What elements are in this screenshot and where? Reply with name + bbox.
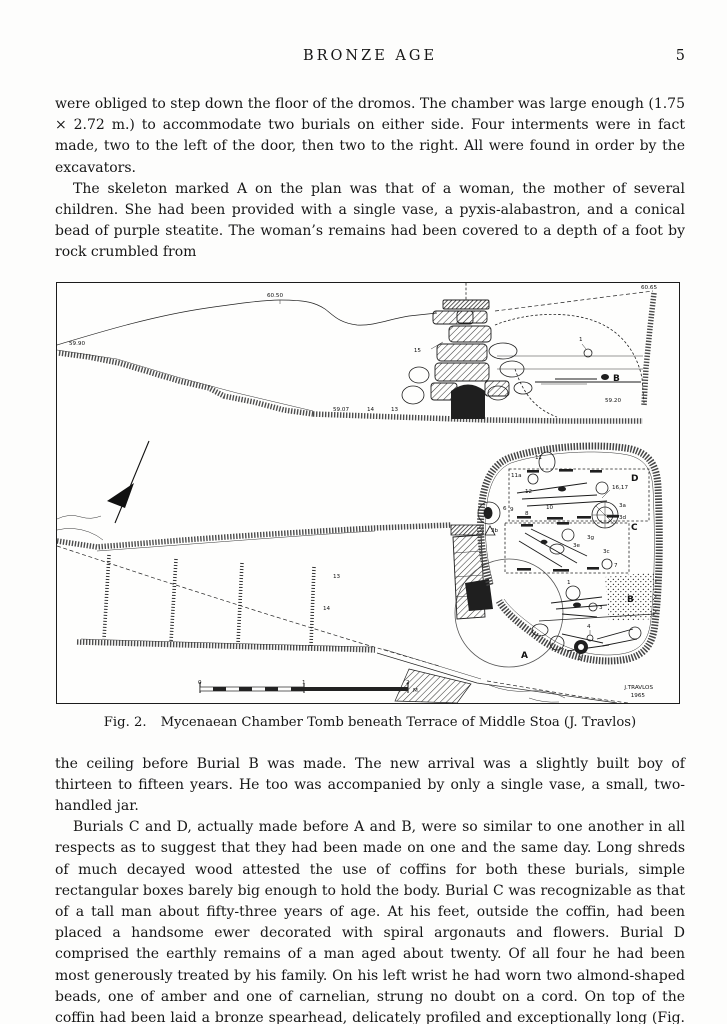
section-drawing: 60.50 60.65 59.90 59.07 14 13 59.20 15 1… — [57, 283, 657, 421]
figure-caption: Fig. 2.Mycenaean Chamber Tomb beneath Te… — [55, 715, 685, 730]
elevation-label: 60.50 — [267, 293, 283, 299]
burial-a-label: A — [521, 651, 528, 661]
item-label: 3b — [491, 528, 499, 534]
scale-label: 1 — [302, 680, 306, 686]
item-label: 3a — [619, 503, 626, 509]
book-page: BRONZE AGE 5 were obliged to step down t… — [0, 0, 727, 1024]
scale-bar: 0 1 2 M. — [198, 680, 420, 694]
scale-label: 2 — [406, 680, 410, 686]
section-skeleton-b — [535, 374, 641, 384]
paragraph: were obliged to step down the floor of t… — [55, 94, 685, 179]
item-label: 14 — [367, 407, 375, 413]
figure-credit: J.TRAVLOS — [623, 685, 653, 691]
paragraph: Burials C and D, actually made before A … — [55, 817, 685, 1024]
item-label: 3g — [587, 535, 595, 541]
page-number: 5 — [676, 48, 685, 64]
paragraph: the ceiling before Burial B was made. Th… — [55, 754, 685, 818]
text-block-top: were obliged to step down the floor of t… — [55, 94, 685, 264]
item-label: 8 — [525, 511, 529, 517]
burial-b-label: B — [627, 595, 634, 605]
figure-frame: 60.50 60.65 59.90 59.07 14 13 59.20 15 1… — [56, 282, 680, 704]
item-label: 13 — [333, 574, 341, 580]
item-label: 16,17 — [612, 485, 628, 491]
paragraph: The skeleton marked A on the plan was th… — [55, 179, 685, 264]
figure-caption-text: Mycenaean Chamber Tomb beneath Terrace o… — [161, 715, 637, 730]
section-burial-b-label: B — [613, 374, 620, 384]
item-label: 11a — [511, 473, 522, 479]
item-label: 9 — [510, 507, 514, 513]
item-label: 3e — [573, 543, 581, 549]
text-block-bottom: the ceiling before Burial B was made. Th… — [55, 754, 685, 1024]
figure-credit-year: 1965 — [631, 693, 646, 699]
item-label: 2 — [578, 656, 582, 662]
scale-unit-label: M. — [413, 688, 420, 694]
item-label: 7 — [614, 563, 618, 569]
running-title: BRONZE AGE — [303, 48, 437, 64]
north-arrow-icon — [107, 441, 149, 523]
item-label: 10 — [546, 505, 554, 511]
item-label: 13 — [391, 407, 399, 413]
krater-item — [592, 502, 618, 528]
item-label: 15 — [414, 348, 422, 354]
figure-2: 60.50 60.65 59.90 59.07 14 13 59.20 15 1… — [55, 282, 685, 730]
burial-b — [539, 572, 658, 621]
figure-drawing: 60.50 60.65 59.90 59.07 14 13 59.20 15 1… — [57, 283, 679, 703]
item-label: 12 — [525, 489, 532, 495]
plan-drawing: 13 14 D C B A 11 11a 12 16,17 9 8 10 6 — [57, 441, 659, 703]
later-wall — [395, 669, 471, 703]
item-label: 1 — [567, 580, 571, 586]
item-label: 4 — [587, 624, 591, 630]
page-header: BRONZE AGE 5 — [55, 0, 685, 64]
scale-label: 0 — [198, 680, 202, 686]
item-label: 11 — [535, 455, 543, 461]
elevation-label: 59.07 — [333, 407, 349, 413]
item-7-circle — [602, 559, 612, 569]
burial-d-label: D — [631, 474, 638, 484]
item-label: 1 — [579, 337, 583, 343]
item-label: 6 — [503, 506, 507, 512]
blocking-wall — [451, 525, 493, 619]
item-label: 3c — [603, 549, 610, 555]
figure-caption-label: Fig. 2. — [104, 715, 147, 730]
burial-c — [505, 522, 629, 573]
elevation-label: 60.65 — [641, 285, 657, 291]
burial-c-label: C — [631, 523, 638, 533]
item-label: 3d — [619, 515, 627, 521]
elevation-label: 59.20 — [605, 398, 621, 404]
item-label: 14 — [323, 606, 331, 612]
elevation-label: 59.90 — [69, 341, 85, 347]
item-label: 3 — [599, 605, 603, 611]
